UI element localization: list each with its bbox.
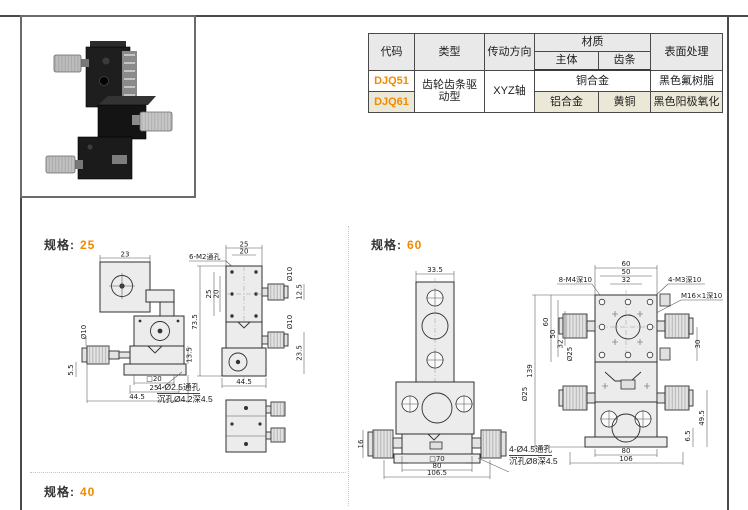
svg-text:16: 16: [357, 439, 365, 448]
svg-text:50: 50: [549, 330, 557, 339]
spec-60-value: 60: [407, 238, 422, 252]
spec-label-text: 规格:: [371, 238, 402, 252]
header-code: 代码: [369, 34, 415, 71]
svg-text:30: 30: [694, 340, 702, 349]
header-direction: 传动方向: [485, 34, 535, 71]
cell-direction: XYZ轴: [485, 70, 535, 113]
svg-text:12.5: 12.5: [296, 284, 304, 300]
drawing-spec60-side-view: 33.5 16 □70 80 106.5: [360, 260, 512, 478]
spec-label-60: 规格:60: [371, 236, 422, 253]
svg-text:49.5: 49.5: [698, 410, 706, 426]
svg-text:139: 139: [526, 364, 534, 377]
cell-type: 齿轮齿条驱动型: [415, 70, 485, 113]
spec-label-text: 规格:: [44, 485, 75, 499]
header-material-rack: 齿条: [599, 52, 651, 71]
column-divider: [348, 226, 349, 506]
svg-text:4-M3深10: 4-M3深10: [668, 275, 701, 284]
svg-text:50: 50: [622, 268, 631, 276]
svg-text:44.5: 44.5: [129, 393, 145, 401]
header-material: 材质: [535, 34, 651, 52]
drawing-spec25-front-view: 6-M2通孔 25 20 25 20 73.5 Ø10 12.5: [186, 240, 308, 458]
svg-text:Ø25: Ø25: [521, 387, 529, 401]
svg-text:20: 20: [213, 290, 221, 299]
cell-surface-row2: 黑色阳极氧化: [651, 92, 723, 113]
svg-text:106.5: 106.5: [427, 469, 447, 477]
cell-code-djq61: DJQ61: [369, 92, 415, 113]
cell-code-djq51: DJQ51: [369, 70, 415, 92]
svg-text:5.5: 5.5: [67, 364, 75, 375]
svg-text:6-M2通孔: 6-M2通孔: [189, 252, 220, 261]
svg-text:6.5: 6.5: [684, 430, 692, 441]
cell-surface-row1: 黑色氟树脂: [651, 70, 723, 92]
svg-text:106: 106: [619, 455, 633, 463]
svg-text:20: 20: [240, 248, 249, 256]
svg-text:Ø10: Ø10: [80, 325, 88, 339]
drawing-spec60-front-view: 60 50 32 8-M4深10 4-M3深10 M16×1深10: [517, 256, 729, 472]
catalog-page: 代码 类型 传动方向 材质 表面处理 主体 齿条 DJQ51 齿轮齿条驱动型 X…: [0, 0, 748, 510]
svg-text:73.5: 73.5: [191, 314, 199, 330]
header-surface: 表面处理: [651, 34, 723, 71]
header-type: 类型: [415, 34, 485, 71]
spec-40-value: 40: [80, 485, 95, 499]
svg-text:M16×1深10: M16×1深10: [681, 291, 722, 300]
section-divider: [30, 472, 346, 473]
cell-material-rack-row2: 黄铜: [599, 92, 651, 113]
svg-text:Ø10: Ø10: [286, 315, 294, 329]
header-material-body: 主体: [535, 52, 599, 71]
product-photo-box: [20, 15, 196, 198]
cell-material-body-row2: 铝合金: [535, 92, 599, 113]
svg-text:80: 80: [622, 447, 631, 455]
svg-text:8-M4深10: 8-M4深10: [559, 275, 592, 284]
svg-text:44.5: 44.5: [236, 378, 252, 386]
svg-text:32: 32: [557, 340, 565, 349]
svg-text:33.5: 33.5: [427, 266, 443, 274]
svg-text:32: 32: [622, 276, 631, 284]
svg-text:23.5: 23.5: [296, 345, 304, 361]
product-photo: [22, 17, 194, 196]
svg-text:60: 60: [622, 260, 631, 268]
cell-material-row1: 铜合金: [535, 70, 651, 92]
spec-label-40: 规格:40: [44, 483, 95, 500]
spec-table: 代码 类型 传动方向 材质 表面处理 主体 齿条 DJQ51 齿轮齿条驱动型 X…: [368, 33, 723, 113]
svg-text:Ø25: Ø25: [566, 347, 574, 361]
svg-text:Ø10: Ø10: [286, 267, 294, 281]
svg-text:23: 23: [121, 251, 130, 259]
svg-text:60: 60: [542, 318, 550, 327]
